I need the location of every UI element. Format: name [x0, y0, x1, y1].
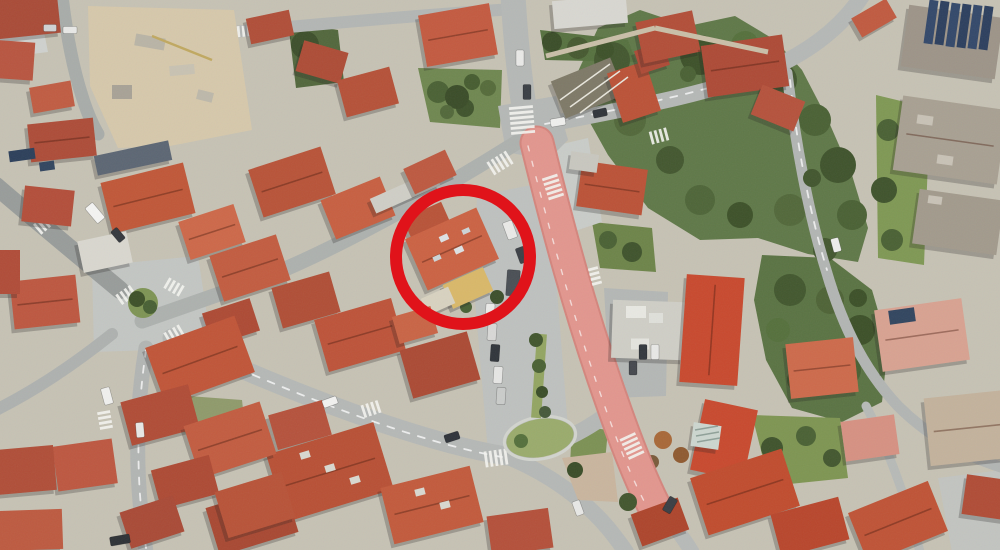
aerial-photo-viewport: [0, 0, 1000, 550]
satellite-map: [0, 0, 1000, 550]
grain-layer: [0, 0, 1000, 550]
photo-grain: [0, 0, 1000, 550]
